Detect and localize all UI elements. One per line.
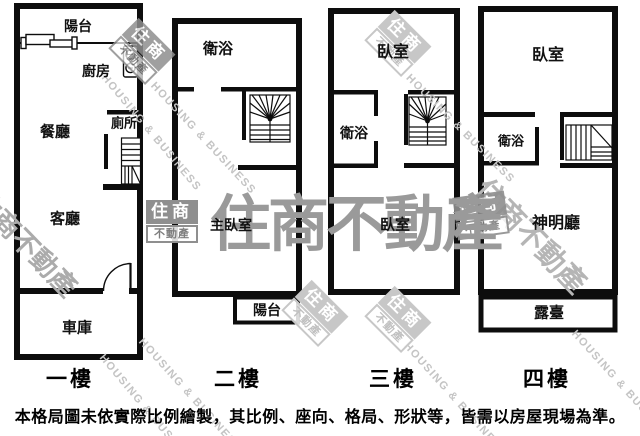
room-label-shrine-hall: 神明廳 bbox=[532, 209, 580, 233]
floor-label-3f: 三樓 bbox=[369, 363, 417, 393]
room-label-master-bedroom: 主臥室 bbox=[210, 215, 252, 235]
brand-big-watermark: 住商不動產 bbox=[210, 194, 500, 255]
floorplan-page: HOUSING & BUSINESS HOUSING & BUSINESS HO… bbox=[0, 0, 640, 436]
brand-logo-stamp: 住商 不動產 bbox=[146, 200, 198, 243]
room-label-kitchen: 廚房 bbox=[82, 61, 110, 81]
sliding-window-icon bbox=[21, 35, 77, 50]
room-label-balcony-f2: 陽台 bbox=[253, 300, 281, 320]
room-label-bedroom-f4: 臥室 bbox=[532, 41, 564, 65]
floor-label-4f: 四樓 bbox=[523, 363, 571, 393]
room-label-garage: 車庫 bbox=[62, 317, 92, 338]
floor2-stairs-icon bbox=[250, 95, 290, 142]
room-label-bath-f4: 衛浴 bbox=[498, 131, 524, 150]
floor-label-1f: 一樓 bbox=[46, 363, 94, 393]
room-label-bath-f3: 衛浴 bbox=[340, 123, 368, 143]
room-label-bedroom-f3-upper: 臥室 bbox=[377, 38, 409, 62]
floor-label-2f: 二樓 bbox=[214, 363, 262, 393]
room-label-balcony-f1: 陽台 bbox=[64, 16, 92, 36]
room-label-dining: 餐廳 bbox=[40, 121, 70, 142]
disclaimer-text: 本格局圖未依實際比例繪製，其比例、座向、格局、形狀等，皆需以房屋現場為準。 bbox=[0, 403, 640, 427]
door-arc-icon bbox=[104, 263, 131, 291]
room-label-bedroom-f3-lower: 臥室 bbox=[380, 214, 410, 235]
floor4-stairs-icon bbox=[566, 125, 612, 160]
floor1-stairs-icon bbox=[122, 138, 141, 184]
room-label-bath-f2: 衛浴 bbox=[203, 38, 233, 59]
room-label-terrace: 露臺 bbox=[534, 302, 564, 323]
room-label-living: 客廳 bbox=[50, 208, 80, 229]
room-label-toilet: 廁所 bbox=[111, 113, 137, 132]
